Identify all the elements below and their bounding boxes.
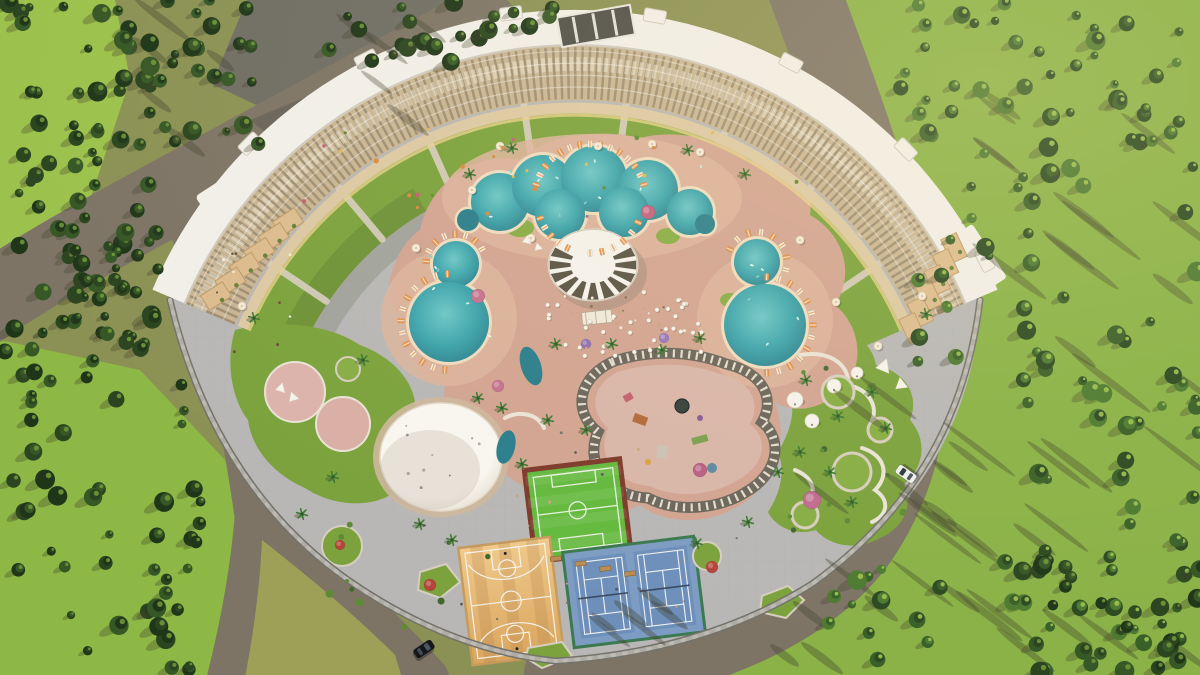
pergola xyxy=(581,309,612,325)
playground-pad-1 xyxy=(265,362,325,422)
tennis-courts xyxy=(563,536,706,647)
resort-aerial-render xyxy=(0,0,1200,675)
event-dome xyxy=(373,397,509,517)
scene-svg xyxy=(0,0,1200,675)
dome-shading xyxy=(380,430,480,510)
playground-pad-2 xyxy=(316,397,370,451)
palm-circle xyxy=(336,357,360,381)
